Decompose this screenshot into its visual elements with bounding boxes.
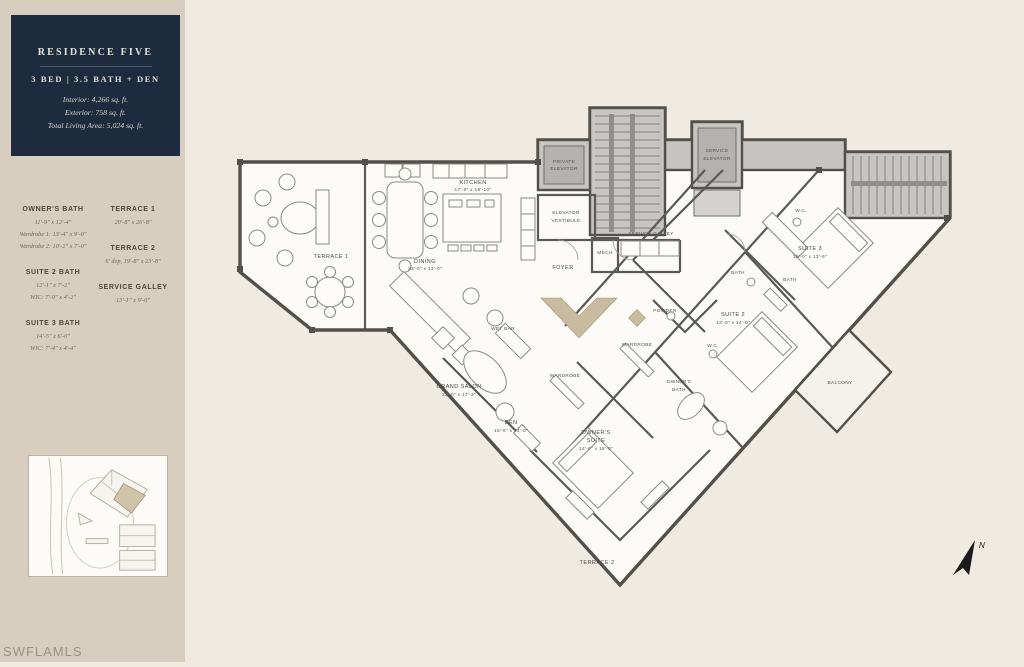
- stat-total: Total Living Area: 5,024 sq. ft.: [11, 119, 180, 132]
- dining-chair: [399, 168, 411, 180]
- terrace-chair: [343, 277, 354, 288]
- room-label-owners-suite-1: OWNER'S: [581, 430, 610, 436]
- residence-info-card: RESIDENCE FIVE 3 BED | 3.5 BATH + DEN In…: [11, 15, 180, 156]
- terrace-chair: [343, 297, 354, 308]
- dining-chair: [425, 214, 438, 227]
- column: [237, 266, 243, 272]
- legend-suite3-bath: SUITE 3 BATH 14'-5" x 6'-0" WIC: 7'-4" x…: [13, 320, 93, 355]
- wc-toilet-2: [793, 218, 801, 226]
- service-elevator-car: [698, 128, 736, 182]
- legend-terrace1: TERRACE 1 20'-8" x 26'-8": [93, 206, 173, 229]
- legend-service-galley: SERVICE GALLEY 13'-1" x 9'-0": [93, 284, 173, 307]
- room-label-owners-bath-2: BATH: [672, 387, 686, 393]
- dining-table: [387, 182, 423, 258]
- legend-left-column: OWNER'S BATH 11'-9" x 12'-4" Wardrobe 1:…: [13, 206, 93, 371]
- terrace-chair: [307, 277, 318, 288]
- room-label-suite3: SUITE 3: [798, 246, 822, 252]
- dining-chair: [425, 236, 438, 249]
- terrace-chair: [277, 250, 293, 266]
- room-label-wardrobe-a: WARDROBE: [550, 373, 580, 379]
- stair-rail: [609, 114, 614, 232]
- legend-right-column: TERRACE 1 20'-8" x 26'-8" TERRACE 2 6' d…: [93, 206, 173, 371]
- residence-stats: Interior: 4,266 sq. ft. Exterior: 758 sq…: [11, 93, 180, 132]
- kitchen-counter: [433, 164, 507, 178]
- salon-armchair: [487, 310, 503, 326]
- stat-interior: Interior: 4,266 sq. ft.: [11, 93, 180, 106]
- legend-suite2-bath: SUITE 2 BATH 12'-1" x 7'-2" WIC: 7'-9" x…: [13, 269, 93, 304]
- room-label-wc-bottom: W.C.: [707, 343, 719, 349]
- stat-exterior: Exterior: 758 sq. ft.: [11, 106, 180, 119]
- cooktop-1: [449, 200, 462, 207]
- kitchen-tall-cabinets: [521, 198, 535, 260]
- room-label-wet-bar: WET BAR: [491, 326, 515, 332]
- room-label-vestibule-2: VESTIBULE: [551, 218, 580, 224]
- amenity-bar: [86, 539, 108, 544]
- keyplan-map: [29, 456, 167, 576]
- room-label-private-elevator-2: ELEVATOR: [550, 166, 577, 172]
- den-chair: [496, 403, 514, 421]
- shoreline: [49, 458, 53, 574]
- room-label-wardrobe-b: WARDROBE: [622, 342, 652, 348]
- room-dims-suite2: 13'-0" x 14'-0": [716, 320, 750, 326]
- terrace-chair: [307, 297, 318, 308]
- legend-owners-bath: OWNER'S BATH 11'-9" x 12'-4" Wardrobe 1:…: [13, 206, 93, 253]
- column: [944, 215, 950, 221]
- room-label-service-elevator-1: SERVICE: [705, 148, 728, 154]
- room-dims-suite3: 15'-0" x 13'-6": [793, 254, 827, 260]
- room-label-kitchen: KITCHEN: [459, 180, 486, 186]
- residence-title: RESIDENCE FIVE: [11, 47, 180, 58]
- room-dims-den: 15'-6" x 14'-0": [494, 428, 528, 434]
- stool-3: [474, 245, 484, 251]
- owners-shower: [713, 421, 727, 435]
- column: [816, 167, 822, 173]
- amenity-shape: [78, 513, 92, 525]
- floor-plan: TERRACE 1 KITCHEN 17'-9" x 15'-10" DININ…: [185, 0, 1024, 662]
- terrace-dining-table: [315, 277, 345, 307]
- room-label-bath-a: BATH: [731, 270, 745, 276]
- left-sidebar: RESIDENCE FIVE 3 BED | 3.5 BATH + DEN In…: [0, 0, 185, 662]
- terrace-chair: [325, 307, 336, 318]
- dining-chair: [425, 192, 438, 205]
- room-label-terrace1: TERRACE 1: [314, 254, 349, 260]
- room-label-bath-b: BATH: [783, 277, 797, 283]
- legend-terrace2: TERRACE 2 6' dep, 19'-8" x 23'-8": [93, 245, 173, 268]
- room-label-powder: POWDER: [653, 308, 677, 314]
- room-label-service-galley: SERVICE GALLEY: [628, 231, 674, 237]
- column: [387, 327, 393, 333]
- private-elevator-car: [544, 146, 584, 184]
- dimensions-legend: OWNER'S BATH 11'-9" x 12'-4" Wardrobe 1:…: [13, 206, 173, 371]
- room-label-grand-salon: GRAND SALON: [436, 384, 481, 390]
- column: [362, 159, 368, 165]
- dining-chair: [373, 192, 386, 205]
- site-keyplan: [28, 455, 168, 577]
- terrace-chair: [249, 230, 265, 246]
- terrace-coffee-table: [281, 202, 319, 234]
- service-vestibule: [694, 190, 740, 216]
- residence-subtitle: 3 BED | 3.5 BATH + DEN: [11, 74, 180, 84]
- dining-chair: [373, 214, 386, 227]
- room-dims-grand-salon: 23'-0" x 17'-3": [442, 392, 476, 398]
- room-label-balcony: BALCONY: [827, 380, 853, 386]
- room-dims-owners-suite: 14'-0" x 18'-0": [579, 446, 613, 452]
- room-label-owners-bath-1: OWNER'S: [667, 379, 692, 385]
- card-divider: [40, 66, 152, 67]
- stool-4: [487, 245, 497, 251]
- cooktop-2: [467, 200, 480, 207]
- north-compass-icon: N: [953, 540, 985, 575]
- compass-arrow: [953, 540, 975, 575]
- room-label-dining: DINING: [414, 259, 436, 265]
- mls-watermark: SWFLAMLS: [3, 644, 83, 659]
- dining-chair: [373, 236, 386, 249]
- terrace-chair: [279, 174, 295, 190]
- room-label-private-elevator-1: PRIVATE: [553, 159, 575, 165]
- column: [237, 159, 243, 165]
- room-dims-kitchen: 17'-9" x 15'-10": [455, 187, 492, 193]
- column: [535, 159, 541, 165]
- terrace-side-table: [268, 217, 278, 227]
- room-label-terrace2: TERRACE 2: [580, 560, 615, 566]
- room-label-foyer: FOYER: [552, 265, 573, 271]
- room-label-owners-suite-2: SUITE: [587, 438, 605, 444]
- room-label-service-elevator-2: ELEVATOR: [703, 156, 730, 162]
- galley-counter: [621, 241, 679, 256]
- compass-north-letter: N: [979, 541, 985, 550]
- room-label-suite2: SUITE 2: [721, 312, 745, 318]
- room-label-den: DEN: [504, 420, 517, 426]
- terrace-chair: [255, 190, 271, 206]
- floor-plan-area: TERRACE 1 KITCHEN 17'-9" x 15'-10" DININ…: [185, 0, 1024, 662]
- bath-fixture: [747, 278, 755, 286]
- terrace-chair: [325, 267, 336, 278]
- room-label-vestibule-1: ELEVATOR: [552, 210, 579, 216]
- terrace-sofa: [316, 190, 329, 244]
- stair-rail-2: [630, 114, 635, 232]
- stool-1: [448, 245, 458, 251]
- salon-armchair: [463, 288, 479, 304]
- room-label-mech: MECH: [597, 250, 613, 256]
- sink: [485, 200, 494, 207]
- stool-2: [461, 245, 471, 251]
- room-label-wc-top: W.C.: [795, 208, 807, 214]
- stair-rail-3: [851, 181, 947, 186]
- column: [309, 327, 315, 333]
- room-dims-dining: 23'-0" x 13'-0": [408, 266, 442, 272]
- shoreline-2: [61, 458, 63, 574]
- wc-toilet: [709, 350, 717, 358]
